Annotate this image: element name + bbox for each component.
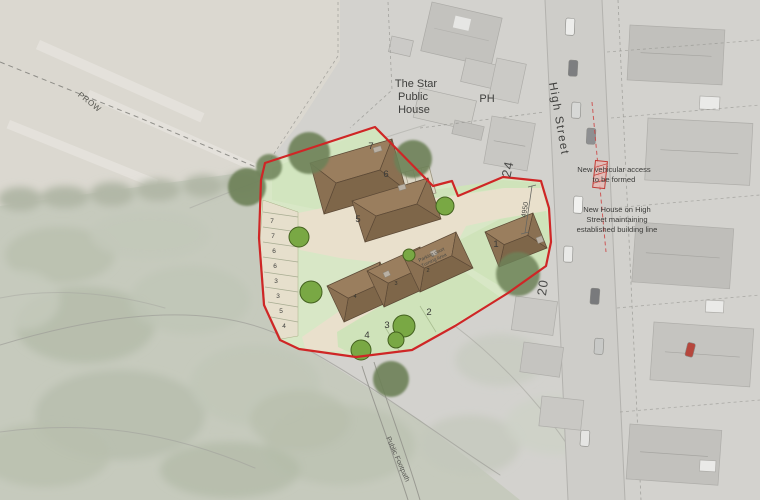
plot-3-label: 3 xyxy=(384,320,389,331)
roof-number-3: 3 xyxy=(394,281,397,287)
plot-2-label: 2 xyxy=(426,307,431,318)
bay-4: 6 xyxy=(273,263,277,270)
site-plan-map: 4950 The Star Public House PH High Stree… xyxy=(0,0,760,500)
bay-1: 7 xyxy=(270,218,274,225)
roof-number-2: 2 xyxy=(426,268,429,274)
aerial-site-plan-canvas: 4950 The Star Public House PH High Stree… xyxy=(0,0,760,500)
bay-7: 5 xyxy=(279,308,283,315)
access-note-line2: to be formed xyxy=(593,175,636,184)
access-note-line1: New vehicular access xyxy=(577,165,651,174)
bay-3: 6 xyxy=(272,248,276,255)
bay-8: 4 xyxy=(282,323,286,330)
ph-label: PH xyxy=(479,93,494,105)
bay-2: 7 xyxy=(271,233,275,240)
plot-1-label: 1 xyxy=(493,239,498,250)
house-20-label: 20 xyxy=(534,278,551,296)
plot-7-label: 7 xyxy=(368,141,373,152)
house-note-line1: New House on High xyxy=(583,205,651,214)
pub-label-line1: The Star xyxy=(395,78,438,90)
roof-number-4: 4 xyxy=(353,294,356,300)
house-note-line3: established building line xyxy=(577,225,658,234)
house-note-line2: Street maintaining xyxy=(586,215,647,224)
plot-4-label: 4 xyxy=(364,330,369,341)
pub-label-line3: House xyxy=(398,104,430,116)
plot-6-label: 6 xyxy=(383,169,388,180)
bay-5: 3 xyxy=(274,278,278,285)
pub-label-line2: Public xyxy=(398,91,428,103)
plot-5-label: 5 xyxy=(355,214,360,225)
bay-6: 3 xyxy=(276,293,280,300)
